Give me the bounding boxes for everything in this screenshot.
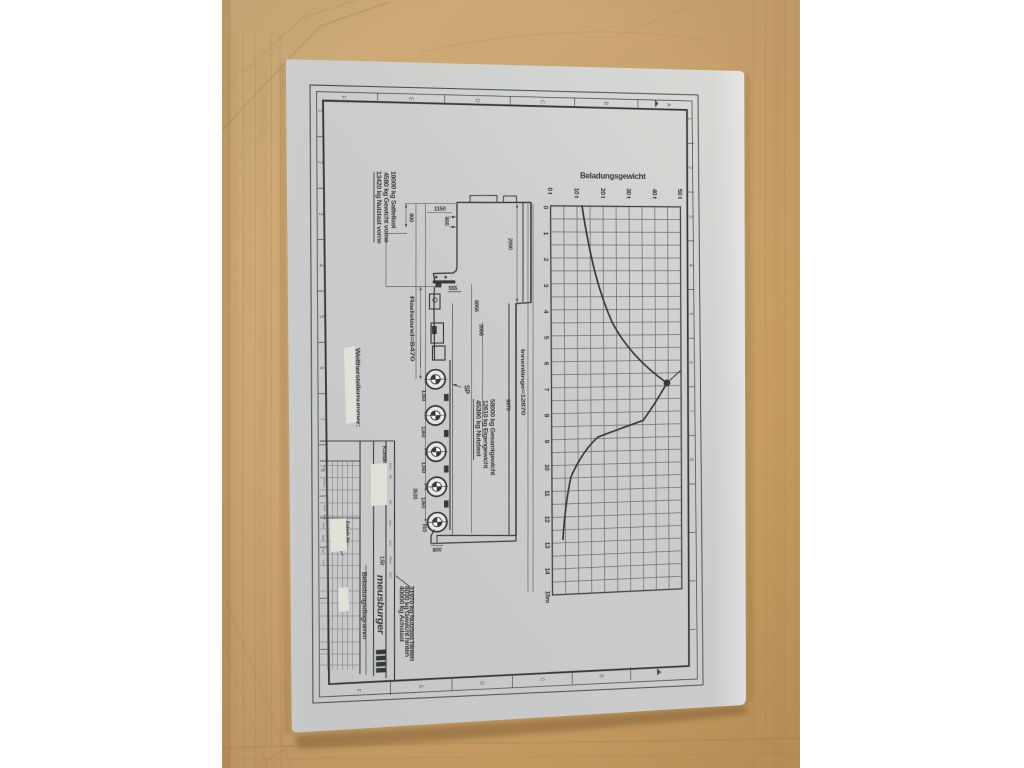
svg-text:Maßstab: Maßstab: [389, 556, 393, 565]
svg-text:12610 kg Eigengewicht: 12610 kg Eigengewicht: [482, 400, 489, 469]
svg-text:1360: 1360: [420, 497, 426, 509]
svg-text:A: A: [665, 103, 670, 107]
svg-text:SP: SP: [463, 385, 472, 394]
svg-text:5: 5: [318, 315, 324, 318]
svg-text:5: 5: [542, 336, 549, 340]
svg-text:Gepr.: Gepr.: [322, 548, 326, 554]
svg-text:8: 8: [543, 414, 550, 418]
svg-text:Werkst: Werkst: [389, 463, 393, 470]
svg-text:13: 13: [543, 542, 550, 549]
svg-text:Datum: Datum: [322, 522, 326, 529]
svg-text:6: 6: [543, 362, 550, 366]
svg-text:E: E: [417, 685, 423, 689]
svg-text:4: 4: [317, 264, 323, 267]
svg-text:Änderung: Änderung: [323, 478, 327, 488]
svg-text:C: C: [539, 678, 545, 682]
svg-text:Datum: Datum: [322, 505, 326, 512]
svg-text:2990: 2990: [507, 238, 514, 251]
svg-text:910: 910: [421, 523, 427, 533]
svg-text:45390 kg Nutzlast: 45390 kg Nutzlast: [475, 400, 482, 457]
svg-text:7: 7: [543, 388, 550, 392]
svg-text:4: 4: [542, 310, 549, 314]
svg-text:12: 12: [543, 516, 550, 523]
svg-text:18000 kg Sattellast: 18000 kg Sattellast: [390, 171, 397, 229]
svg-text:1360: 1360: [420, 462, 426, 474]
svg-text:Innenlänge=12870: Innenlänge=12870: [519, 349, 526, 416]
svg-text:10: 10: [543, 464, 550, 471]
svg-text:0: 0: [542, 206, 549, 210]
svg-text:5: 5: [688, 312, 693, 315]
svg-text:14: 14: [544, 567, 551, 574]
svg-text:meusburger: meusburger: [375, 575, 386, 636]
svg-text:2: 2: [542, 258, 549, 262]
svg-text:F: F: [340, 96, 346, 100]
svg-text:8: 8: [688, 458, 693, 461]
svg-text:Name: Name: [389, 540, 393, 547]
svg-text:58000 kg Gesamtgewicht: 58000 kg Gesamtgewicht: [489, 399, 496, 476]
svg-text:gepr: gepr: [389, 500, 393, 505]
svg-text:2: 2: [687, 166, 692, 169]
svg-text:Blatt: Blatt: [389, 475, 393, 479]
svg-text:1150: 1150: [434, 206, 446, 213]
svg-text:0 t: 0 t: [546, 187, 554, 195]
svg-text:20 t: 20 t: [599, 188, 607, 199]
svg-text:13420 kg Nutzlast vorne: 13420 kg Nutzlast vorne: [375, 171, 382, 244]
svg-text:F: F: [355, 689, 361, 693]
svg-text:11: 11: [543, 490, 550, 497]
svg-text:Zeichn: Zeichn: [389, 572, 393, 579]
svg-text:6: 6: [318, 366, 324, 369]
svg-text:15m: 15m: [544, 591, 551, 603]
svg-text:Datum: Datum: [389, 520, 393, 527]
svg-text:2: 2: [317, 161, 323, 164]
svg-text:9970: 9970: [505, 399, 512, 412]
svg-text:Norm: Norm: [322, 560, 326, 566]
svg-text:1: 1: [542, 232, 549, 236]
svg-text:7: 7: [688, 410, 693, 413]
svg-text:4: 4: [687, 264, 692, 267]
svg-text:Bearb.: Bearb.: [322, 535, 326, 542]
svg-text:30 t: 30 t: [625, 188, 633, 199]
svg-text:1360: 1360: [420, 426, 426, 438]
svg-text:40 t: 40 t: [651, 188, 659, 199]
svg-text:1: 1: [316, 109, 322, 112]
svg-text:Kunde:: Kunde:: [381, 446, 388, 465]
svg-text:E: E: [407, 97, 413, 101]
svg-text:1360: 1360: [420, 390, 426, 402]
svg-text:555: 555: [448, 285, 458, 292]
svg-text:Belastungsdiagramm: Belastungsdiagramm: [361, 572, 370, 640]
svg-text:800: 800: [433, 547, 443, 554]
svg-text:6866: 6866: [473, 300, 480, 313]
svg-text:3: 3: [317, 212, 323, 215]
svg-text:C: C: [539, 100, 545, 104]
svg-text:B: B: [598, 674, 603, 678]
svg-text:3: 3: [542, 284, 549, 288]
svg-text:4580 kg Gewicht vorne: 4580 kg Gewicht vorne: [382, 172, 389, 243]
svg-text:D: D: [474, 98, 480, 102]
svg-text:9: 9: [543, 440, 550, 444]
svg-text:400: 400: [443, 217, 450, 227]
svg-text:900: 900: [408, 213, 415, 223]
svg-text:3: 3: [687, 215, 692, 218]
svg-text:B: B: [603, 102, 608, 106]
svg-text:Name: Name: [323, 514, 327, 521]
svg-text:3530: 3530: [412, 488, 418, 500]
svg-text:Beladungsgewicht: Beladungsgewicht: [580, 171, 646, 181]
svg-text:Radstand=8470: Radstand=8470: [408, 296, 415, 362]
svg-text:50 t: 50 t: [676, 189, 684, 200]
svg-text:3966: 3966: [478, 324, 485, 337]
svg-text:10 t: 10 t: [573, 188, 581, 199]
svg-text:7: 7: [319, 418, 325, 421]
svg-text:Zust.: Zust.: [323, 465, 327, 470]
svg-text:6: 6: [688, 361, 693, 364]
svg-text:1:50: 1:50: [379, 556, 385, 565]
svg-text:D: D: [479, 681, 485, 685]
svg-text:1: 1: [687, 117, 692, 120]
